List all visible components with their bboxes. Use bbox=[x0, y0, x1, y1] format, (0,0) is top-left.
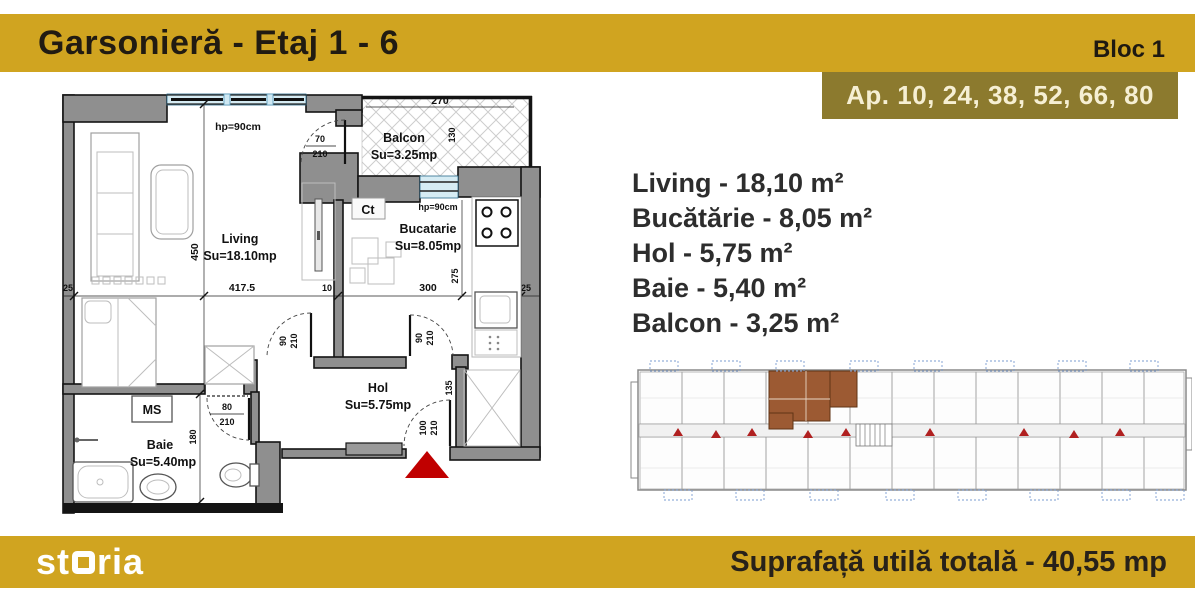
svg-text:417.5: 417.5 bbox=[229, 282, 255, 294]
svg-text:Su=3.25mp: Su=3.25mp bbox=[371, 148, 438, 162]
list-item: Balcon - 3,25 m² bbox=[632, 306, 872, 341]
room-label-baie: Baie bbox=[147, 438, 173, 452]
svg-text:Su=18.10mp: Su=18.10mp bbox=[203, 249, 277, 263]
list-item: Bucătărie - 8,05 m² bbox=[632, 201, 872, 236]
svg-text:Su=5.75mp: Su=5.75mp bbox=[345, 398, 412, 412]
washing-machine-label: MS bbox=[143, 403, 162, 417]
door-bedroom: 90 210 bbox=[267, 313, 311, 357]
entrance-marker bbox=[405, 451, 449, 478]
svg-text:25: 25 bbox=[63, 283, 73, 293]
svg-text:70: 70 bbox=[315, 134, 325, 144]
svg-text:275: 275 bbox=[450, 268, 460, 283]
door-entrance: 100 210 135 bbox=[404, 380, 454, 446]
svg-text:135: 135 bbox=[444, 380, 454, 395]
svg-text:210: 210 bbox=[219, 417, 234, 427]
listing-flyer: { "header": { "title": "Garsonieră - Eta… bbox=[0, 0, 1195, 604]
door-kitchen: 90 210 bbox=[410, 315, 453, 356]
room-label-hol: Hol bbox=[368, 381, 388, 395]
svg-text:210: 210 bbox=[312, 149, 327, 159]
svg-text:90: 90 bbox=[414, 333, 424, 343]
svg-text:210: 210 bbox=[289, 333, 299, 348]
svg-text:25: 25 bbox=[521, 283, 531, 293]
door-bathroom: 80 210 bbox=[207, 396, 249, 440]
room-area-list: Living - 18,10 m² Bucătărie - 8,05 m² Ho… bbox=[632, 166, 872, 341]
svg-text:180: 180 bbox=[188, 429, 198, 444]
svg-text:450: 450 bbox=[189, 243, 201, 261]
svg-text:10: 10 bbox=[322, 283, 332, 293]
list-item: Baie - 5,40 m² bbox=[632, 271, 872, 306]
svg-text:Su=5.40mp: Su=5.40mp bbox=[130, 455, 197, 469]
overview-corridor bbox=[639, 424, 1185, 437]
total-area-label: Suprafață utilă totală - 40,55 mp bbox=[730, 546, 1167, 579]
page-title: Garsonieră - Etaj 1 - 6 bbox=[38, 24, 399, 63]
overview-stairs bbox=[856, 424, 892, 446]
svg-text:130: 130 bbox=[447, 127, 457, 142]
svg-text:90: 90 bbox=[278, 336, 288, 346]
building-overview-svg bbox=[628, 358, 1192, 514]
svg-text:100: 100 bbox=[418, 420, 428, 435]
list-item: Living - 18,10 m² bbox=[632, 166, 872, 201]
svg-text:300: 300 bbox=[419, 282, 437, 294]
list-item: Hol - 5,75 m² bbox=[632, 236, 872, 271]
room-label-bucatarie: Bucatarie bbox=[400, 222, 457, 236]
header-bar: Garsonieră - Etaj 1 - 6 Bloc 1 bbox=[0, 14, 1195, 72]
apartment-badge: Ap. 10, 24, 38, 52, 66, 80 bbox=[822, 72, 1178, 119]
boiler-label: Ct bbox=[361, 203, 375, 217]
svg-text:210: 210 bbox=[429, 420, 439, 435]
floor-plan-svg: hp=90cm hp=90cm 70 210 90 210 90 210 80 … bbox=[60, 88, 545, 520]
logo-square-o-icon bbox=[72, 551, 95, 574]
radiator bbox=[346, 443, 402, 455]
room-label-balcon: Balcon bbox=[383, 131, 425, 145]
window-top-label: hp=90cm bbox=[215, 121, 261, 133]
window-top: hp=90cm bbox=[167, 94, 306, 133]
building-overview bbox=[628, 358, 1192, 514]
svg-text:80: 80 bbox=[222, 402, 232, 412]
floor-plan: hp=90cm hp=90cm 70 210 90 210 90 210 80 … bbox=[60, 88, 545, 520]
bloc-label: Bloc 1 bbox=[1093, 36, 1165, 64]
window-kitchen-label: hp=90cm bbox=[418, 202, 457, 212]
storia-logo: stria bbox=[36, 541, 144, 583]
room-label-living: Living bbox=[222, 232, 259, 246]
svg-text:Su=8.05mp: Su=8.05mp bbox=[395, 239, 462, 253]
svg-text:210: 210 bbox=[425, 330, 435, 345]
window-kitchen: hp=90cm bbox=[418, 176, 458, 212]
svg-text:270: 270 bbox=[431, 95, 449, 107]
footer-bar: stria Suprafață utilă totală - 40,55 mp bbox=[0, 536, 1195, 588]
